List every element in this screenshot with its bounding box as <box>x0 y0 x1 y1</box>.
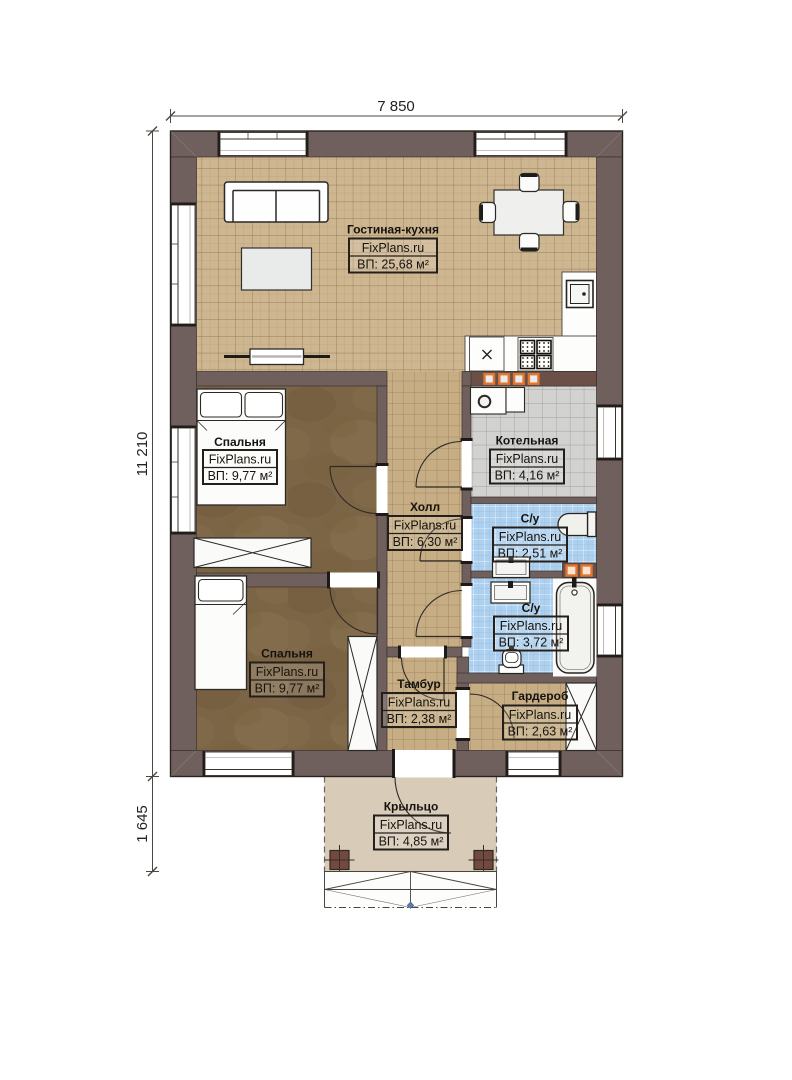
svg-text:ВП: 9,77 м²: ВП: 9,77 м² <box>208 469 273 483</box>
svg-text:FixPlans.ru: FixPlans.ru <box>362 241 425 255</box>
svg-text:FixPlans.ru: FixPlans.ru <box>496 452 559 466</box>
svg-text:FixPlans.ru: FixPlans.ru <box>388 696 451 710</box>
svg-text:Гостиная-кухня: Гостиная-кухня <box>347 223 439 237</box>
svg-text:11 210: 11 210 <box>134 432 151 477</box>
svg-text:Холл: Холл <box>410 500 440 514</box>
svg-text:ВП: 6,30 м²: ВП: 6,30 м² <box>393 535 458 549</box>
svg-text:FixPlans.ru: FixPlans.ru <box>209 453 272 467</box>
svg-text:FixPlans.ru: FixPlans.ru <box>499 530 562 544</box>
svg-text:1 645: 1 645 <box>134 805 151 843</box>
svg-text:FixPlans.ru: FixPlans.ru <box>256 665 319 679</box>
svg-text:ВП: 3,72 м²: ВП: 3,72 м² <box>499 636 564 650</box>
svg-text:С/у: С/у <box>522 601 541 615</box>
svg-text:Гардероб: Гардероб <box>512 689 569 703</box>
svg-text:С/у: С/у <box>521 512 540 526</box>
svg-text:FixPlans.ru: FixPlans.ru <box>509 708 572 722</box>
svg-text:Спальня: Спальня <box>261 647 313 661</box>
svg-text:FixPlans.ru: FixPlans.ru <box>380 818 443 832</box>
svg-text:ВП: 2,38 м²: ВП: 2,38 м² <box>387 712 452 726</box>
svg-text:7 850: 7 850 <box>377 98 415 115</box>
svg-text:ВП: 2,51 м²: ВП: 2,51 м² <box>498 547 563 561</box>
svg-text:ВП: 9,77 м²: ВП: 9,77 м² <box>255 682 320 696</box>
svg-text:FixPlans.ru: FixPlans.ru <box>394 519 457 533</box>
svg-text:FixPlans.ru: FixPlans.ru <box>500 619 563 633</box>
svg-text:Тамбур: Тамбур <box>397 677 441 691</box>
svg-text:Крыльцо: Крыльцо <box>384 800 439 814</box>
svg-text:ВП: 4,85 м²: ВП: 4,85 м² <box>379 835 444 849</box>
svg-text:Котельная: Котельная <box>496 434 559 448</box>
svg-text:Спальня: Спальня <box>214 435 266 449</box>
svg-text:ВП: 25,68 м²: ВП: 25,68 м² <box>357 258 429 272</box>
svg-text:ВП: 2,63 м²: ВП: 2,63 м² <box>508 725 573 739</box>
svg-text:ВП: 4,16 м²: ВП: 4,16 м² <box>495 469 560 483</box>
